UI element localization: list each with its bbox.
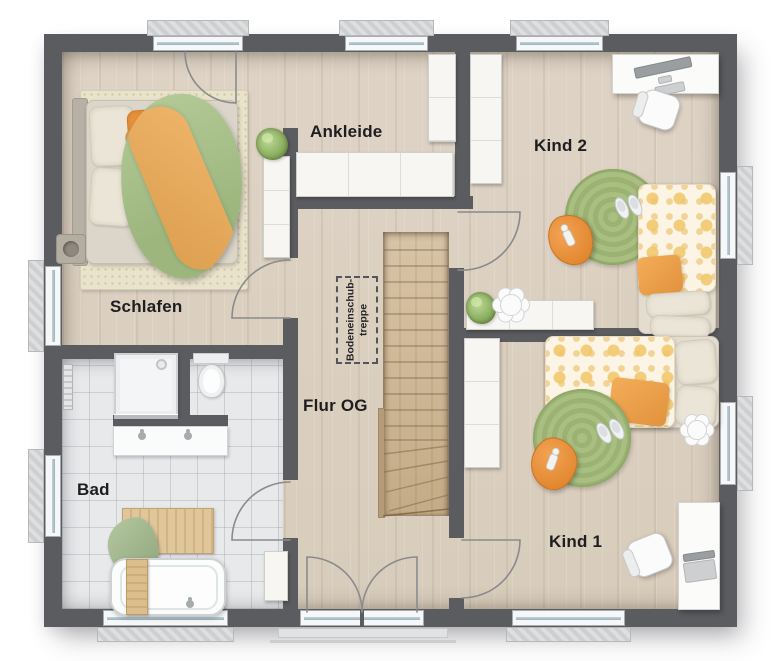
window-bad-left xyxy=(45,455,61,537)
attic-ladder-label-line1: Bodeneinschub- xyxy=(344,277,357,363)
window-box-kind1-bottom xyxy=(506,627,631,642)
tub-faucet xyxy=(186,600,194,608)
staircase xyxy=(383,232,449,516)
bed-pillow xyxy=(674,384,717,427)
french-door-rail xyxy=(270,640,456,643)
window-box-kind1-right xyxy=(737,396,753,491)
orange-blanket xyxy=(636,254,683,296)
label-flur: Flur OG xyxy=(303,396,368,416)
window-ankleide xyxy=(345,36,428,51)
toilet-tank xyxy=(193,353,229,364)
attic-ladder-label: Bodeneinschub- treppe xyxy=(344,277,369,363)
faucet xyxy=(184,432,192,440)
french-door-mullion xyxy=(360,610,364,626)
wall-kind1-door-stub xyxy=(449,598,464,613)
window-schlafen-top xyxy=(153,36,243,51)
wall-bad-east-upper xyxy=(283,359,298,480)
french-door-step xyxy=(278,628,448,638)
bath-caddy xyxy=(126,559,148,615)
window-box-schlafen-top xyxy=(147,20,249,36)
bedside-pouf xyxy=(56,234,86,264)
faucet xyxy=(138,432,146,440)
double-vanity xyxy=(113,426,228,456)
plant xyxy=(256,128,288,160)
window-box-bad-bottom xyxy=(97,627,234,642)
label-ankleide: Ankleide xyxy=(310,122,382,142)
window-kind2-right xyxy=(720,172,736,259)
stair-handrail xyxy=(378,408,385,518)
towel-radiator xyxy=(63,364,73,410)
attic-ladder-label-line2: treppe xyxy=(357,277,370,363)
wardrobe-long xyxy=(296,152,454,197)
label-kind2: Kind 2 xyxy=(534,136,587,156)
shower xyxy=(114,353,178,417)
bed-pillow xyxy=(674,338,718,385)
bath-cabinet xyxy=(264,551,288,601)
wall-ankleide-south xyxy=(290,196,473,209)
wall-shower-partition xyxy=(176,352,190,420)
window-kind1-bottom xyxy=(512,610,625,626)
window-box-kind2-top xyxy=(510,20,609,36)
window-box-schlafen-left xyxy=(28,260,44,352)
plant xyxy=(466,292,496,324)
window-schlafen-left xyxy=(45,266,61,346)
wall-ankleide-kind2 xyxy=(455,52,470,209)
window-box-bad-left xyxy=(28,449,44,543)
wall-flur-kind-rooms xyxy=(449,268,464,538)
shower-drain xyxy=(156,359,167,370)
window-box-ankleide xyxy=(339,20,434,36)
attic-ladder-box: Bodeneinschub- treppe xyxy=(336,276,378,364)
floor-plan-canvas: Bodeneinschub- treppe xyxy=(0,0,775,661)
wall-schlafen-door-stub xyxy=(283,318,298,349)
window-kind2-top xyxy=(516,36,603,51)
label-kind1: Kind 1 xyxy=(549,532,602,552)
dresser xyxy=(263,156,290,258)
bed-pillow xyxy=(645,290,711,318)
label-schlafen: Schlafen xyxy=(110,297,182,317)
wardrobe-column xyxy=(428,54,456,142)
wardrobe xyxy=(470,54,502,184)
wall-outer-right xyxy=(719,34,737,627)
window-kind1-right xyxy=(720,402,736,485)
wardrobe xyxy=(464,338,500,468)
toilet xyxy=(198,364,225,398)
window-box-kind2-right xyxy=(737,166,753,265)
label-bad: Bad xyxy=(77,480,110,500)
shower-glass xyxy=(114,414,178,419)
